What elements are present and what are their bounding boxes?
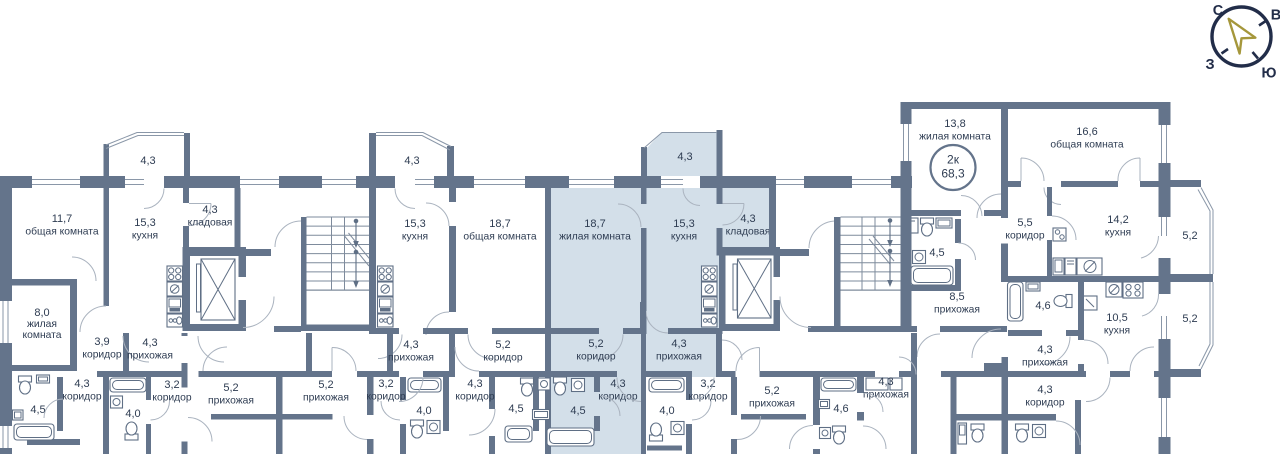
- svg-text:4,6: 4,6: [1035, 300, 1050, 312]
- svg-text:4,3: 4,3: [467, 378, 482, 390]
- svg-text:15,3: 15,3: [134, 217, 155, 229]
- svg-text:5,2: 5,2: [318, 379, 333, 391]
- svg-text:прихожая: прихожая: [388, 353, 434, 364]
- svg-text:кухня: кухня: [132, 231, 158, 242]
- svg-text:кухня: кухня: [671, 232, 697, 243]
- svg-text:прихожая: прихожая: [303, 393, 349, 404]
- svg-text:14,2: 14,2: [1107, 214, 1128, 226]
- svg-text:2к: 2к: [947, 153, 960, 167]
- svg-text:С: С: [1213, 3, 1224, 19]
- svg-text:5,5: 5,5: [1017, 217, 1032, 229]
- svg-text:4,3: 4,3: [140, 155, 155, 167]
- svg-text:4,0: 4,0: [659, 405, 674, 417]
- svg-text:прихожая: прихожая: [1022, 358, 1068, 369]
- svg-text:5,2: 5,2: [1182, 230, 1197, 242]
- svg-text:Ю: Ю: [1262, 66, 1277, 82]
- svg-text:4,6: 4,6: [833, 403, 848, 415]
- svg-text:13,8: 13,8: [944, 118, 965, 130]
- svg-text:4,3: 4,3: [403, 339, 418, 351]
- svg-text:кухня: кухня: [1105, 228, 1131, 239]
- svg-text:3,2: 3,2: [378, 378, 393, 390]
- svg-text:4,3: 4,3: [404, 155, 419, 167]
- svg-text:5,2: 5,2: [588, 338, 603, 350]
- svg-text:4,5: 4,5: [570, 405, 585, 417]
- svg-text:5,2: 5,2: [1182, 313, 1197, 325]
- svg-text:4,3: 4,3: [1037, 384, 1052, 396]
- svg-text:4,3: 4,3: [1037, 344, 1052, 356]
- svg-text:3,2: 3,2: [164, 379, 179, 391]
- svg-text:жилая комната: жилая комната: [559, 232, 631, 243]
- svg-text:прихожая: прихожая: [749, 399, 795, 410]
- svg-text:5,2: 5,2: [223, 382, 238, 394]
- svg-text:68,3: 68,3: [941, 167, 965, 181]
- svg-text:кухня: кухня: [1104, 326, 1130, 337]
- svg-text:5,2: 5,2: [764, 385, 779, 397]
- svg-text:4,3: 4,3: [202, 204, 217, 216]
- svg-text:4,3: 4,3: [671, 338, 686, 350]
- svg-text:4,3: 4,3: [740, 213, 755, 225]
- svg-text:кладовая: кладовая: [188, 218, 233, 229]
- svg-text:8,5: 8,5: [949, 291, 964, 303]
- svg-text:10,5: 10,5: [1106, 312, 1127, 324]
- svg-text:жилая: жилая: [27, 319, 57, 330]
- svg-text:З: З: [1205, 57, 1214, 73]
- svg-text:4,3: 4,3: [878, 376, 893, 388]
- svg-text:коридор: коридор: [82, 350, 122, 361]
- svg-text:18,7: 18,7: [489, 218, 510, 230]
- svg-text:прихожая: прихожая: [127, 351, 173, 362]
- svg-text:коридор: коридор: [1005, 231, 1045, 242]
- svg-text:общая комната: общая комната: [463, 231, 536, 243]
- svg-text:5,2: 5,2: [495, 339, 510, 351]
- svg-text:коридор: коридор: [483, 353, 523, 364]
- svg-text:4,5: 4,5: [508, 403, 523, 415]
- svg-text:прихожая: прихожая: [934, 305, 980, 316]
- svg-text:коридор: коридор: [366, 392, 406, 403]
- svg-text:В: В: [1271, 8, 1280, 24]
- svg-text:комната: комната: [23, 330, 62, 341]
- svg-text:коридор: коридор: [152, 393, 192, 404]
- svg-text:коридор: коридор: [455, 392, 495, 403]
- svg-text:16,6: 16,6: [1076, 126, 1097, 138]
- svg-text:8,0: 8,0: [34, 307, 49, 319]
- svg-text:коридор: коридор: [62, 392, 102, 403]
- svg-text:кладовая: кладовая: [726, 227, 771, 238]
- svg-text:коридор: коридор: [576, 352, 616, 363]
- svg-text:прихожая: прихожая: [656, 352, 702, 363]
- svg-text:18,7: 18,7: [584, 218, 605, 230]
- svg-text:4,3: 4,3: [74, 378, 89, 390]
- svg-text:коридор: коридор: [1025, 398, 1065, 409]
- svg-text:4,5: 4,5: [929, 247, 944, 259]
- svg-text:прихожая: прихожая: [863, 390, 909, 401]
- svg-text:4,3: 4,3: [142, 337, 157, 349]
- svg-text:4,0: 4,0: [125, 408, 140, 420]
- svg-text:15,3: 15,3: [404, 218, 425, 230]
- svg-text:4,3: 4,3: [677, 151, 692, 163]
- svg-text:15,3: 15,3: [673, 218, 694, 230]
- svg-text:4,5: 4,5: [30, 404, 45, 416]
- svg-text:жилая комната: жилая комната: [919, 132, 991, 143]
- svg-text:коридор: коридор: [598, 392, 638, 403]
- svg-text:кухня: кухня: [402, 232, 428, 243]
- svg-text:11,7: 11,7: [52, 213, 73, 225]
- svg-text:общая комната: общая комната: [1050, 139, 1123, 151]
- svg-text:общая комната: общая комната: [25, 226, 98, 238]
- svg-text:3,9: 3,9: [94, 336, 109, 348]
- svg-text:прихожая: прихожая: [208, 396, 254, 407]
- svg-text:4,0: 4,0: [416, 405, 431, 417]
